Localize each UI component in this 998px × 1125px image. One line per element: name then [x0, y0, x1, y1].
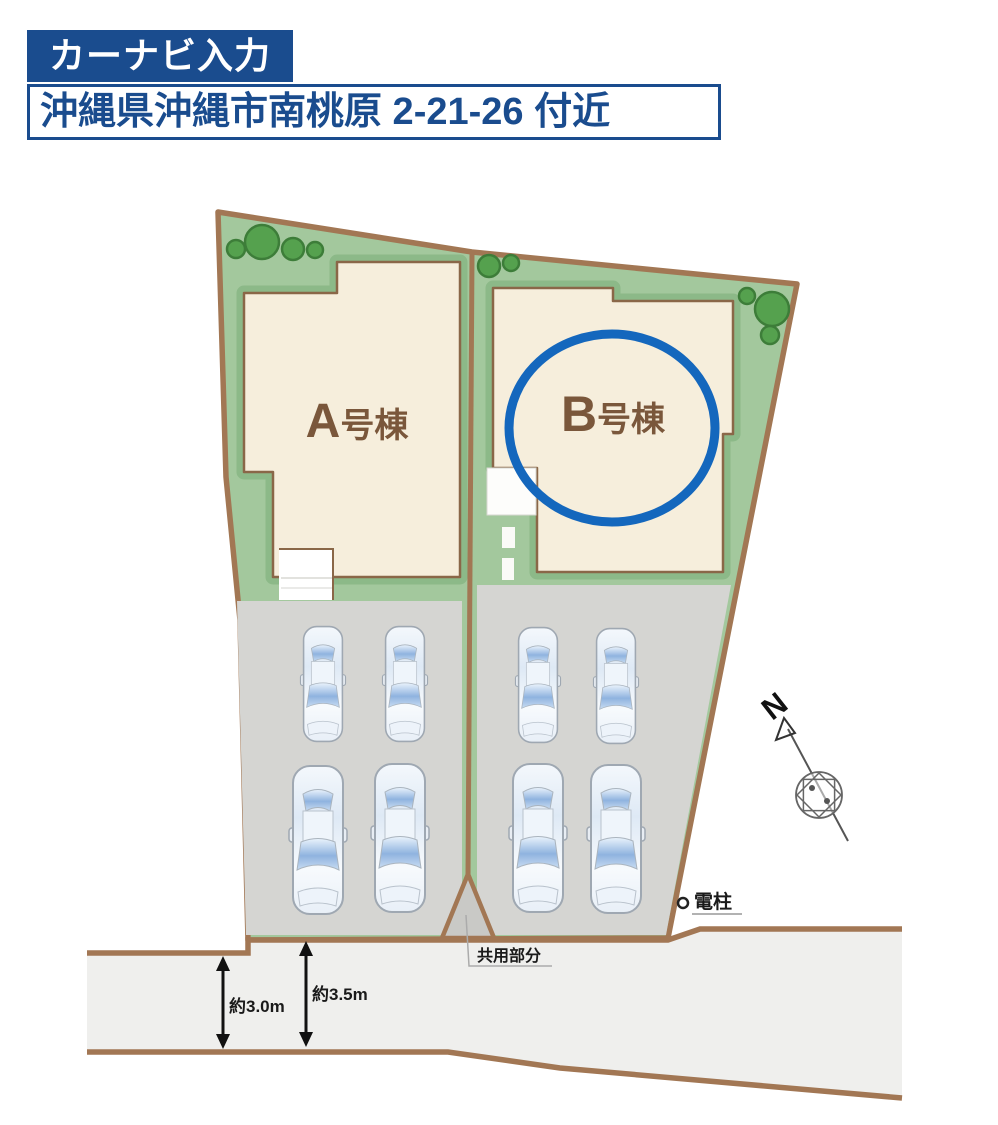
car [587, 765, 645, 913]
car [515, 628, 560, 743]
north-label: N [755, 685, 794, 726]
building-b-letter: B [561, 386, 597, 442]
car [509, 764, 567, 912]
utility-pole-label: 電柱 [694, 890, 732, 913]
car [371, 764, 429, 912]
compass-dot [824, 798, 830, 804]
screenshot-root: カーナビ入力 沖縄県沖縄市南桃原 2-21-26 付近 [0, 0, 998, 1125]
car [300, 627, 345, 742]
utility-pole: 電柱 [678, 890, 742, 914]
building-a-letter: A [306, 395, 341, 448]
tree [503, 255, 519, 271]
utility-pole-marker [678, 898, 688, 908]
car [289, 766, 347, 914]
tree [755, 292, 789, 326]
tree [245, 225, 279, 259]
building-b-porch [487, 468, 536, 515]
tree [282, 238, 304, 260]
car [593, 629, 638, 744]
building-a: A号棟 [244, 262, 460, 600]
parking-area-a [237, 601, 462, 935]
tree [739, 288, 755, 304]
stepping-stone [502, 558, 514, 580]
tree [478, 255, 500, 277]
north-compass: N [755, 685, 848, 841]
stepping-stone [502, 527, 515, 548]
tree [761, 326, 779, 344]
common-area-label: 共用部分 [477, 946, 541, 965]
building-a-suffix: 号棟 [340, 407, 409, 445]
tree [307, 242, 323, 258]
road-width-left-label: 約3.0m [229, 996, 285, 1016]
car [382, 627, 427, 742]
road-width-right-label: 約3.5m [312, 984, 368, 1004]
building-a-porch [279, 548, 333, 600]
site-plan: A号棟 B号棟 [0, 0, 998, 1125]
building-b-suffix: 号棟 [597, 401, 666, 439]
compass-dot [809, 785, 815, 791]
tree [227, 240, 245, 258]
